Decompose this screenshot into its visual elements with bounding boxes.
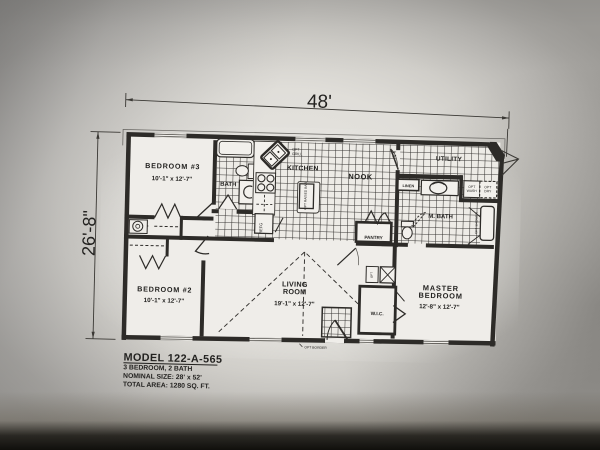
svg-text:48': 48'	[307, 91, 332, 113]
svg-text:W.I.C.: W.I.C.	[371, 311, 384, 317]
svg-text:3 BEDROOM, 2 BATH: 3 BEDROOM, 2 BATH	[123, 364, 192, 373]
svg-text:10'-1" x 12'-7": 10'-1" x 12'-7"	[144, 297, 185, 305]
svg-text:OPT BORDER: OPT BORDER	[304, 345, 327, 350]
svg-text:OPT RAISED BAR: OPT RAISED BAR	[303, 181, 308, 209]
svg-text:NOOK: NOOK	[348, 172, 373, 182]
svg-text:KITCHEN: KITCHEN	[287, 165, 319, 173]
svg-text:BATH: BATH	[220, 182, 236, 188]
svg-text:M. BATH: M. BATH	[428, 214, 453, 221]
svg-text:ROOM: ROOM	[283, 287, 307, 297]
svg-text:PANTRY: PANTRY	[364, 235, 382, 240]
svg-text:TOTAL AREA: 1280 SQ. FT.: TOTAL AREA: 1280 SQ. FT.	[123, 381, 210, 390]
svg-text:10'-1" x 12'-7": 10'-1" x 12'-7"	[152, 175, 193, 183]
svg-text:WASH: WASH	[467, 189, 478, 193]
svg-text:GRILL: GRILL	[292, 152, 302, 156]
svg-text:NOMINAL SIZE: 28' x 52': NOMINAL SIZE: 28' x 52'	[123, 373, 202, 382]
svg-text:REFG: REFG	[258, 223, 263, 234]
svg-text:12'-8" x 12'-7": 12'-8" x 12'-7"	[419, 303, 460, 311]
svg-text:BEDROOM: BEDROOM	[418, 291, 462, 301]
svg-text:19'-1" x 12'-7": 19'-1" x 12'-7"	[274, 300, 315, 308]
svg-text:DRY: DRY	[484, 189, 492, 193]
svg-text:BEDROOM #3: BEDROOM #3	[145, 161, 200, 171]
svg-text:UTILITY: UTILITY	[436, 156, 463, 164]
svg-text:OPT: OPT	[370, 272, 374, 278]
svg-text:26'-8": 26'-8"	[79, 210, 100, 256]
svg-text:LINEN: LINEN	[402, 183, 414, 188]
svg-text:BEDROOM #2: BEDROOM #2	[137, 284, 192, 294]
